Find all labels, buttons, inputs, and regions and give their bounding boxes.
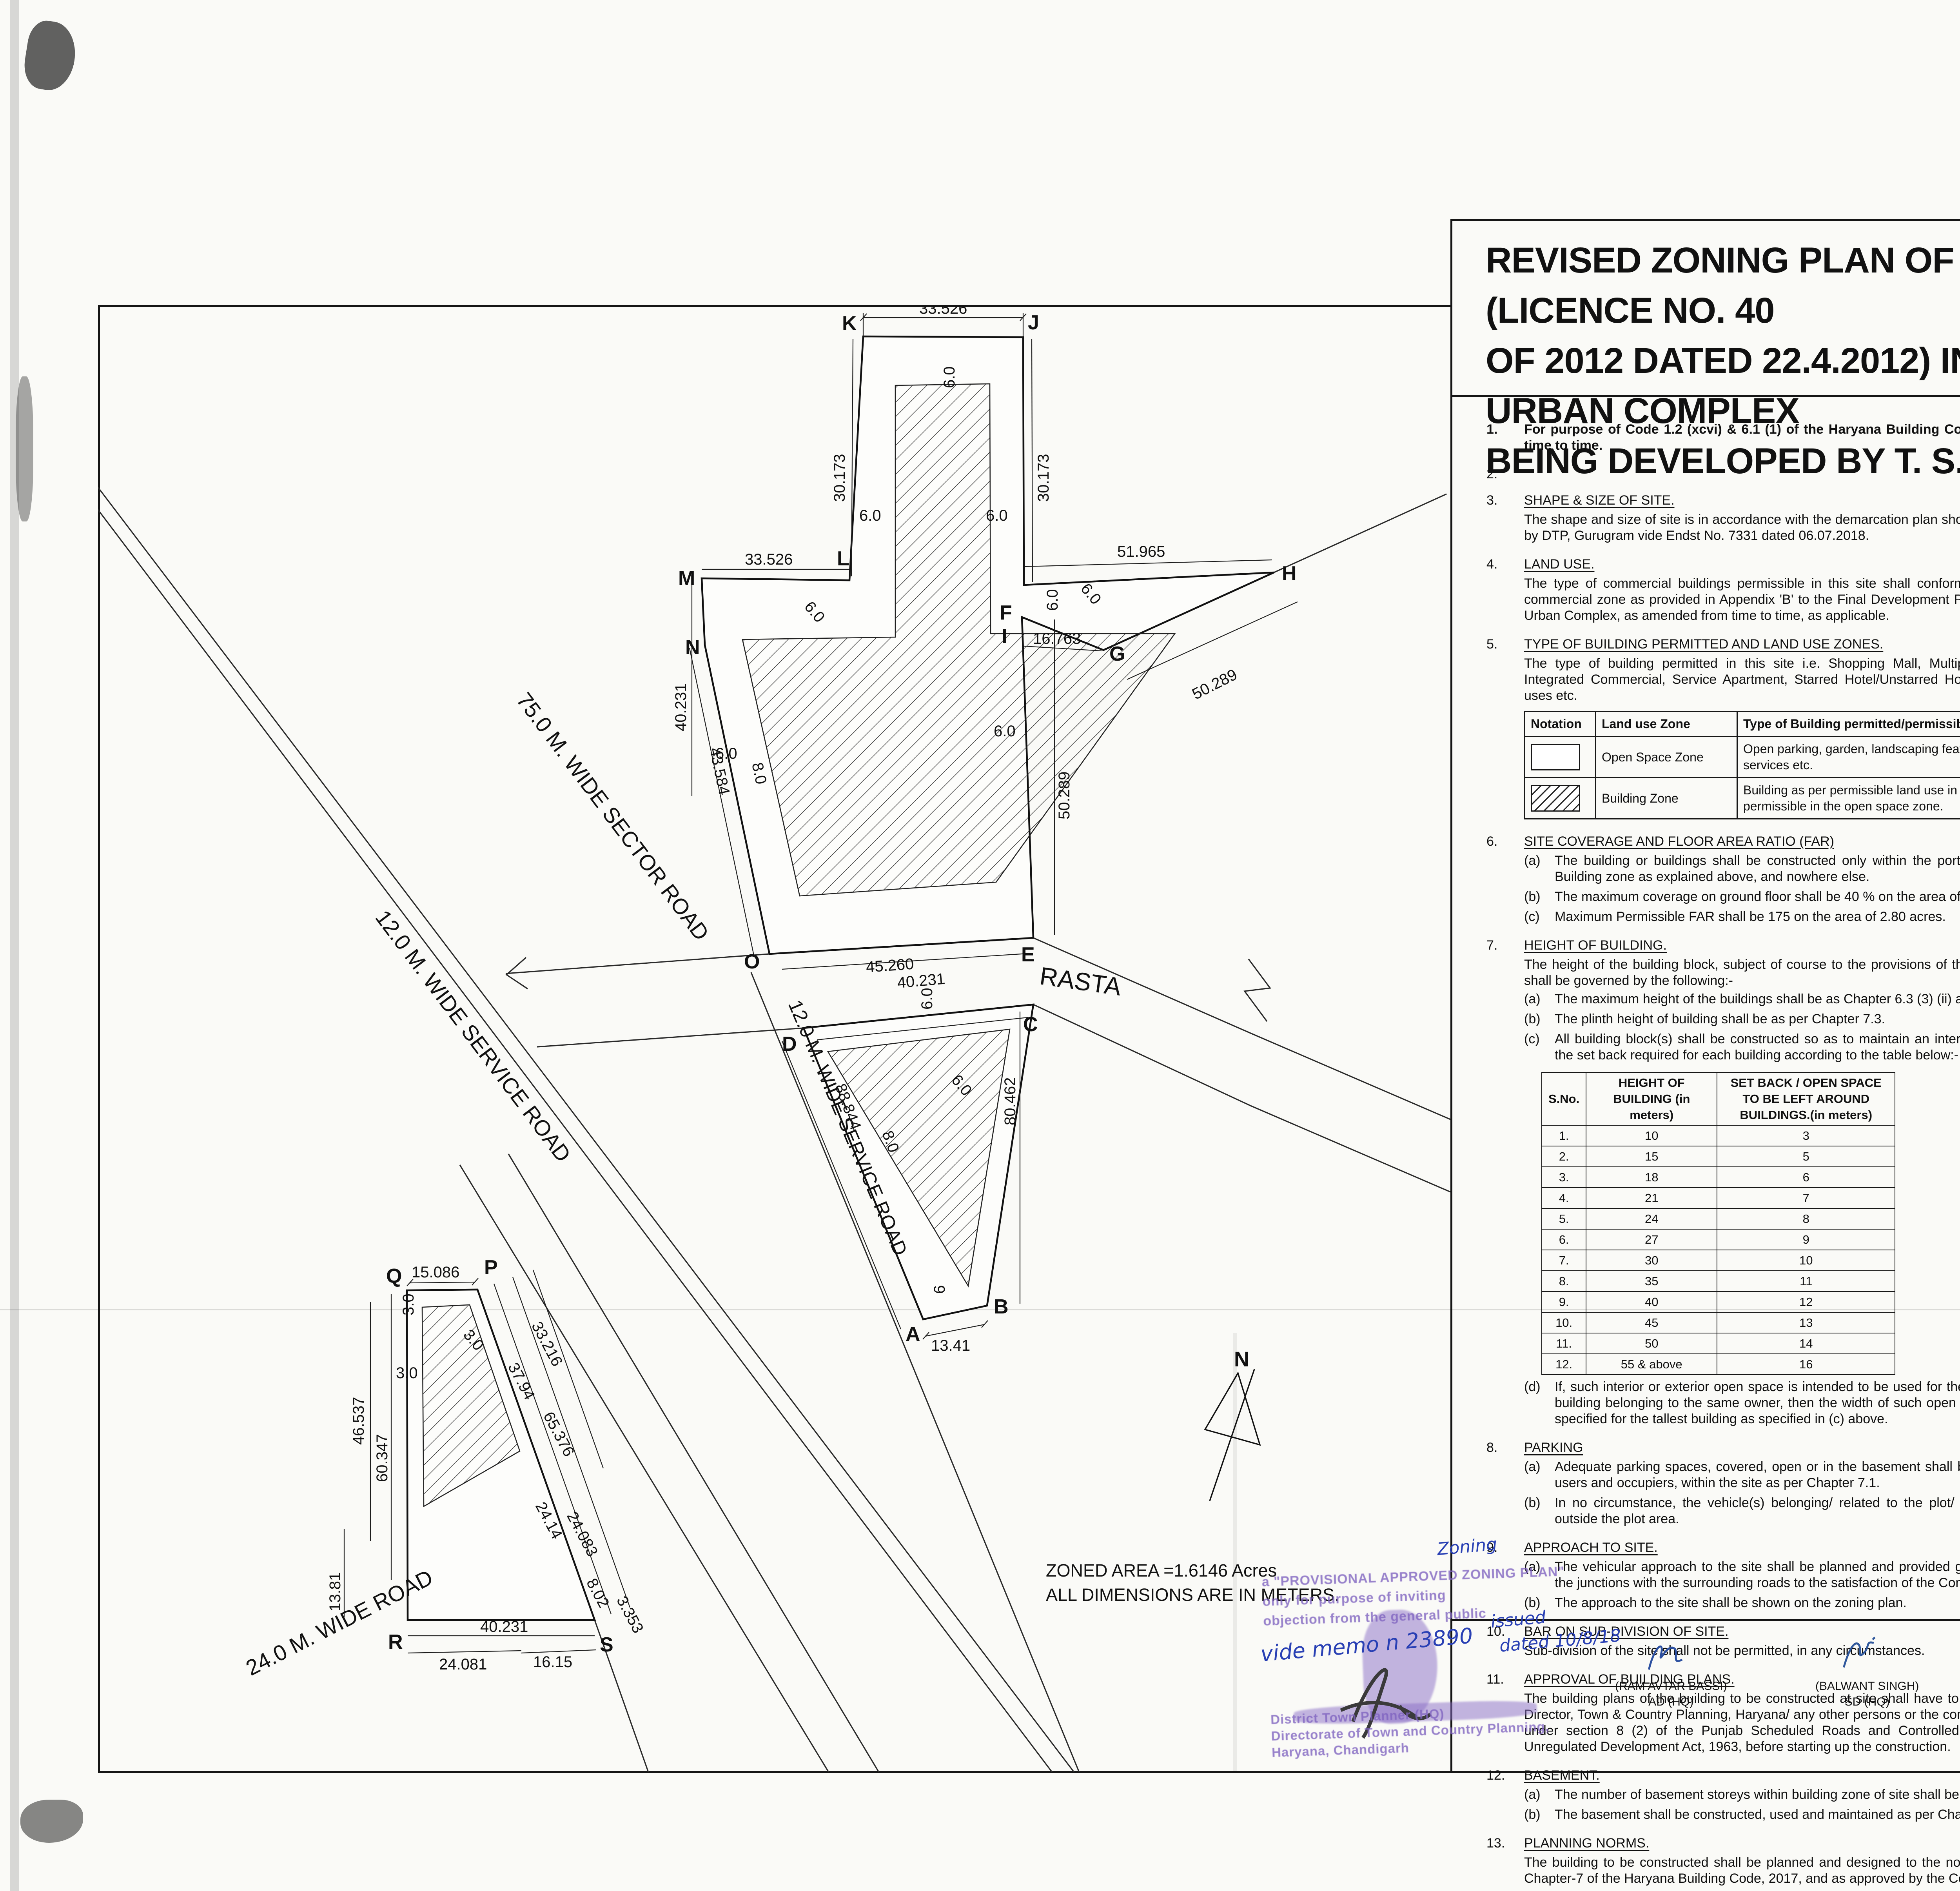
subitem-letter: (d) bbox=[1524, 1379, 1555, 1430]
vertex-O: O bbox=[744, 950, 760, 973]
note-item-7: 7. HEIGHT OF BUILDING. The height of the… bbox=[1486, 937, 1960, 1430]
dim-6-neck-top: 6.0 bbox=[941, 366, 958, 388]
land-use-zone-cell: Open Space Zone bbox=[1596, 737, 1737, 778]
vertex-B: B bbox=[994, 1295, 1009, 1318]
subitem-letter: (a) bbox=[1524, 853, 1555, 887]
dim-6-fg: 6.0 bbox=[1044, 589, 1061, 611]
stamp-handwriting-dated: dated 10/8/18 bbox=[1499, 1626, 1622, 1656]
label-service-road-left: 12.0 M. WIDE SERVICE ROAD bbox=[370, 905, 576, 1166]
vertex-K: K bbox=[842, 312, 857, 335]
dimension-line bbox=[925, 1324, 985, 1336]
signatory-name: (BALWANT SINGH) bbox=[1815, 1678, 1919, 1694]
height-table-header: SET BACK / OPEN SPACE TO BE LEFT AROUND … bbox=[1717, 1072, 1895, 1125]
building-zone-swatch bbox=[1531, 785, 1580, 812]
north-label: N bbox=[1234, 1348, 1249, 1371]
cell-setback: 5 bbox=[1717, 1146, 1895, 1167]
note-number: 13. bbox=[1486, 1835, 1524, 1889]
cell-height: 27 bbox=[1586, 1229, 1717, 1250]
note-subitem: (b)In no circumstance, the vehicle(s) be… bbox=[1524, 1495, 1960, 1530]
cell-height: 55 & above bbox=[1586, 1354, 1717, 1375]
cell-setback: 14 bbox=[1717, 1333, 1895, 1354]
cell-height: 30 bbox=[1586, 1250, 1717, 1271]
table-row: 3.186 bbox=[1542, 1167, 1895, 1188]
vertex-L: L bbox=[837, 547, 849, 570]
note-subitem: (a)The building or buildings shall be co… bbox=[1524, 853, 1960, 887]
sector-road-ne-extension bbox=[1274, 494, 1446, 572]
vertex-N: N bbox=[685, 636, 700, 659]
dim-ih: 51.965 bbox=[1117, 543, 1165, 560]
cell-height: 10 bbox=[1586, 1125, 1717, 1146]
subitem-text: The basement shall be constructed, used … bbox=[1555, 1807, 1960, 1823]
land-use-type-cell: Open parking, garden, landscaping featur… bbox=[1737, 737, 1960, 778]
road24-edge-b bbox=[508, 1154, 879, 1772]
note-item-1: 1. For purpose of Code 1.2 (xcvi) & 6.1 … bbox=[1486, 421, 1960, 456]
dim-3-lower-c: 3.0 bbox=[396, 1364, 418, 1382]
dimension-line bbox=[410, 1282, 475, 1283]
note-text: The building to be constructed shall be … bbox=[1524, 1855, 1960, 1887]
rasta-break-arrow bbox=[1245, 959, 1270, 1021]
dimension-line bbox=[1032, 339, 1033, 582]
cell-sno: 12. bbox=[1542, 1354, 1586, 1375]
north-arrow bbox=[1205, 1369, 1260, 1501]
note-item-2: 2. bbox=[1486, 466, 1960, 482]
cell-setback: 13 bbox=[1717, 1312, 1895, 1333]
dim-hg-diagonal: 50.289 bbox=[1189, 666, 1240, 703]
dim-1615: 16.15 bbox=[533, 1653, 572, 1671]
note-heading: TYPE OF BUILDING PERMITTED AND LAND USE … bbox=[1524, 636, 1960, 652]
zoning-plan-drawing: K J M L I H N F G O E D C B A Q P R S 33… bbox=[98, 306, 1450, 1772]
subitem-letter: (a) bbox=[1524, 1787, 1555, 1805]
note-subitem: (b)The basement shall be constructed, us… bbox=[1524, 1807, 1960, 1825]
subitem-text: The plinth height of building shall be a… bbox=[1555, 1011, 1960, 1027]
note-item-3: 3. SHAPE & SIZE OF SITE. The shape and s… bbox=[1486, 492, 1960, 546]
dim-60347: 60.347 bbox=[374, 1434, 391, 1482]
note-subitem: (c)All building block(s) shall be constr… bbox=[1524, 1031, 1960, 1066]
cell-setback: 6 bbox=[1717, 1167, 1895, 1188]
cell-sno: 7. bbox=[1542, 1250, 1586, 1271]
cell-sno: 11. bbox=[1542, 1333, 1586, 1354]
table-row: 10.4513 bbox=[1542, 1312, 1895, 1333]
note-subitem: (a)The maximum height of the buildings s… bbox=[1524, 991, 1960, 1010]
note-number: 4. bbox=[1486, 556, 1524, 626]
vertex-Q: Q bbox=[386, 1265, 402, 1288]
subitem-letter: (b) bbox=[1524, 889, 1555, 907]
vertex-D: D bbox=[782, 1033, 797, 1055]
note-number: 7. bbox=[1486, 937, 1524, 1430]
cell-height: 18 bbox=[1586, 1167, 1717, 1188]
dim-24081: 24.081 bbox=[439, 1656, 487, 1673]
table-row: 12.55 & above16 bbox=[1542, 1354, 1895, 1375]
cell-setback: 12 bbox=[1717, 1292, 1895, 1312]
title-line2: OF 2012 DATED 22.4.2012) IN SECTOR-85 & … bbox=[1486, 336, 1960, 436]
dim-33216: 33.216 bbox=[528, 1319, 566, 1370]
dim-6-neck-left: 6.0 bbox=[859, 507, 881, 524]
scan-edge-artifact bbox=[10, 0, 19, 1891]
note-number: 6. bbox=[1486, 834, 1524, 927]
dim-neck-left: 30.173 bbox=[831, 454, 848, 502]
subitem-letter: (b) bbox=[1524, 1495, 1555, 1530]
table-row: Building Zone Building as per permissibl… bbox=[1525, 778, 1960, 819]
cell-setback: 7 bbox=[1717, 1188, 1895, 1208]
note-number: 1. bbox=[1486, 421, 1524, 456]
land-use-header-notation: Notation bbox=[1525, 712, 1596, 737]
cell-sno: 1. bbox=[1542, 1125, 1586, 1146]
dim-6-above-c: 6.0 bbox=[918, 988, 936, 1010]
subitem-letter: (c) bbox=[1524, 909, 1555, 927]
land-use-table: Notation Land use Zone Type of Building … bbox=[1524, 711, 1960, 819]
cell-setback: 10 bbox=[1717, 1250, 1895, 1271]
note-number: 5. bbox=[1486, 636, 1524, 823]
subitem-text: Adequate parking spaces, covered, open o… bbox=[1555, 1459, 1960, 1491]
subitem-text: The number of basement storeys within bu… bbox=[1555, 1787, 1960, 1803]
open-space-zone-swatch bbox=[1531, 744, 1580, 770]
signature-block: (BALWANT SINGH) SD (HQ) bbox=[1815, 1633, 1919, 1714]
dim-ab: 13.41 bbox=[931, 1337, 970, 1354]
note-subitem: (a)Adequate parking spaces, covered, ope… bbox=[1524, 1459, 1960, 1493]
dim-6-fe: 6.0 bbox=[994, 723, 1016, 740]
note-heading: PARKING bbox=[1524, 1440, 1960, 1456]
vertex-P: P bbox=[484, 1256, 498, 1279]
signatory-title: SD (HQ) bbox=[1815, 1694, 1919, 1710]
note-item-8: 8. PARKING (a)Adequate parking spaces, c… bbox=[1486, 1440, 1960, 1530]
note-item-6: 6. SITE COVERAGE AND FLOOR AREA RATIO (F… bbox=[1486, 834, 1960, 927]
note-number: 8. bbox=[1486, 1440, 1524, 1530]
note-number: 3. bbox=[1486, 492, 1524, 546]
land-use-zone-cell: Building Zone bbox=[1596, 778, 1737, 819]
note-heading: BASEMENT. bbox=[1524, 1767, 1960, 1784]
dim-fe-vertical: 50.289 bbox=[1056, 772, 1073, 819]
signature-scribble bbox=[1834, 1633, 1900, 1676]
dim-3353: 3.353 bbox=[613, 1593, 647, 1636]
note-subitem: (b)The plinth height of building shall b… bbox=[1524, 1011, 1960, 1030]
cell-height: 21 bbox=[1586, 1188, 1717, 1208]
cell-sno: 4. bbox=[1542, 1188, 1586, 1208]
cell-height: 24 bbox=[1586, 1208, 1717, 1229]
dim-6-neck-right: 6.0 bbox=[986, 507, 1008, 524]
dim-rs: 40.231 bbox=[480, 1618, 528, 1635]
vertex-F: F bbox=[1000, 601, 1012, 624]
note-subitem: (c)Maximum Permissible FAR shall be 175 … bbox=[1524, 909, 1960, 927]
note-item-4: 4. LAND USE. The type of commercial buil… bbox=[1486, 556, 1960, 626]
cell-sno: 9. bbox=[1542, 1292, 1586, 1312]
note-heading: PLANNING NORMS. bbox=[1524, 1835, 1960, 1851]
note-subitem: (d)If, such interior or exterior open sp… bbox=[1524, 1379, 1960, 1430]
stamp-line2: only for purpose of inviting bbox=[1262, 1588, 1446, 1609]
scan-blot-left bbox=[16, 376, 33, 521]
note-text: The shape and size of site is in accorda… bbox=[1524, 512, 1960, 544]
vertex-H: H bbox=[1282, 562, 1297, 585]
cell-height: 15 bbox=[1586, 1146, 1717, 1167]
cell-sno: 10. bbox=[1542, 1312, 1586, 1333]
land-use-type-cell: Building as per permissible land use in … bbox=[1737, 778, 1960, 819]
note-heading: SITE COVERAGE AND FLOOR AREA RATIO (FAR) bbox=[1524, 834, 1960, 850]
vertex-R: R bbox=[388, 1631, 403, 1653]
dim-3-lower-a: 3.0 bbox=[400, 1293, 417, 1315]
cell-sno: 2. bbox=[1542, 1146, 1586, 1167]
dimension-tick bbox=[982, 1321, 988, 1328]
stamp-handwriting-top: Zoning bbox=[1436, 1534, 1498, 1559]
height-setback-table: S.No. HEIGHT OF BUILDING (in meters) SET… bbox=[1541, 1072, 1895, 1375]
dim-kj: 33.526 bbox=[919, 306, 967, 317]
table-row: 9.4012 bbox=[1542, 1292, 1895, 1312]
building-zone-hatch-main bbox=[742, 384, 1175, 896]
dim-neck-right: 30.173 bbox=[1035, 454, 1052, 502]
dim-qp: 15.086 bbox=[412, 1264, 459, 1281]
cell-height: 35 bbox=[1586, 1271, 1717, 1292]
table-row: Open Space Zone Open parking, garden, la… bbox=[1525, 737, 1960, 778]
subitem-text: In no circumstance, the vehicle(s) belon… bbox=[1555, 1495, 1960, 1527]
note-text: The height of the building block, subjec… bbox=[1524, 957, 1960, 989]
cell-sno: 8. bbox=[1542, 1271, 1586, 1292]
approval-stamp: Zoning a "PROVISIONAL APPROVED ZONING PL… bbox=[1253, 1530, 1676, 1764]
cell-height: 50 bbox=[1586, 1333, 1717, 1354]
table-row: 8.3511 bbox=[1542, 1271, 1895, 1292]
dim-m-vertical: 40.231 bbox=[672, 683, 690, 731]
note-text: The type of commercial buildings permiss… bbox=[1524, 576, 1960, 624]
subitem-text: The maximum height of the buildings shal… bbox=[1555, 991, 1960, 1007]
vertex-E: E bbox=[1021, 943, 1035, 966]
cell-height: 40 bbox=[1586, 1292, 1717, 1312]
cell-setback: 16 bbox=[1717, 1354, 1895, 1375]
subitem-text: If, such interior or exterior open space… bbox=[1555, 1379, 1960, 1427]
note-text: The type of building permitted in this s… bbox=[1524, 656, 1960, 704]
note-heading: HEIGHT OF BUILDING. bbox=[1524, 937, 1960, 954]
table-row: 7.3010 bbox=[1542, 1250, 1895, 1271]
note-number: 12. bbox=[1486, 1767, 1524, 1825]
dim-6-triangle-bottom: 6 bbox=[931, 1285, 948, 1294]
note-subitem: (a)The number of basement storeys within… bbox=[1524, 1787, 1960, 1805]
table-row: 5.248 bbox=[1542, 1208, 1895, 1229]
note-subitem: (b)The maximum coverage on ground floor … bbox=[1524, 889, 1960, 907]
note-number: 2. bbox=[1486, 466, 1524, 482]
dim-6-left-edge: 6.0 bbox=[715, 745, 737, 762]
land-use-header-type: Type of Building permitted/permissible s… bbox=[1737, 712, 1960, 737]
cell-setback: 8 bbox=[1717, 1208, 1895, 1229]
dim-oe: 45.260 bbox=[866, 955, 915, 976]
cell-height: 45 bbox=[1586, 1312, 1717, 1333]
dim-fg: 16.763 bbox=[1033, 630, 1081, 647]
dimension-line bbox=[521, 1650, 596, 1653]
table-row: 11.5014 bbox=[1542, 1333, 1895, 1354]
cell-sno: 3. bbox=[1542, 1167, 1586, 1188]
scan-blot-topleft bbox=[21, 18, 80, 93]
scan-blot-bottomleft bbox=[20, 1800, 83, 1843]
vertex-I: I bbox=[1002, 625, 1007, 648]
vertex-M: M bbox=[678, 567, 695, 590]
table-row: 4.217 bbox=[1542, 1188, 1895, 1208]
vertex-S: S bbox=[600, 1633, 613, 1656]
subitem-text: Maximum Permissible FAR shall be 175 on … bbox=[1555, 909, 1960, 925]
border-top-text bbox=[1450, 219, 1960, 221]
height-table-header: S.No. bbox=[1542, 1072, 1586, 1125]
dimension-line bbox=[408, 1651, 521, 1653]
note-item-12: 12. BASEMENT. (a)The number of basement … bbox=[1486, 1767, 1960, 1825]
note-heading: SHAPE & SIZE OF SITE. bbox=[1524, 492, 1960, 509]
cell-setback: 11 bbox=[1717, 1271, 1895, 1292]
subitem-letter: (b) bbox=[1524, 1011, 1555, 1030]
subitem-text: The maximum coverage on ground floor sha… bbox=[1555, 889, 1960, 905]
note-item-5: 5. TYPE OF BUILDING PERMITTED AND LAND U… bbox=[1486, 636, 1960, 823]
height-table-header: HEIGHT OF BUILDING (in meters) bbox=[1586, 1072, 1717, 1125]
label-rasta: RASTA bbox=[1038, 962, 1123, 1001]
stamp-handwriting-issued: issued bbox=[1490, 1607, 1547, 1632]
cell-setback: 9 bbox=[1717, 1229, 1895, 1250]
dimension-line bbox=[1025, 560, 1272, 567]
vertex-G: G bbox=[1109, 643, 1125, 665]
subitem-letter: (c) bbox=[1524, 1031, 1555, 1066]
vertex-J: J bbox=[1028, 311, 1039, 334]
land-use-header-zone: Land use Zone bbox=[1596, 712, 1737, 737]
dim-ml: 33.526 bbox=[745, 551, 793, 568]
subitem-text: All building block(s) shall be construct… bbox=[1555, 1031, 1960, 1063]
dim-46537: 46.537 bbox=[350, 1397, 367, 1445]
note-item-13-left: 13. PLANNING NORMS. The building to be c… bbox=[1486, 1835, 1960, 1889]
cell-sno: 5. bbox=[1542, 1208, 1586, 1229]
subitem-letter: (a) bbox=[1524, 1459, 1555, 1493]
dim-1381: 13.81 bbox=[327, 1572, 344, 1611]
title-line1: REVISED ZONING PLAN OF COMMERCIAL SITE M… bbox=[1486, 235, 1960, 336]
cell-setback: 3 bbox=[1717, 1125, 1895, 1146]
scanned-sheet: K J M L I H N F G O E D C B A Q P R S 33… bbox=[0, 0, 1960, 1891]
table-row: 2.155 bbox=[1542, 1146, 1895, 1167]
dim-cb: 80.462 bbox=[1002, 1077, 1019, 1125]
dim-65376: 65.376 bbox=[540, 1409, 577, 1460]
cell-sno: 6. bbox=[1542, 1229, 1586, 1250]
note-text: For purpose of Code 1.2 (xcvi) & 6.1 (1)… bbox=[1524, 421, 1960, 454]
table-row: 1.103 bbox=[1542, 1125, 1895, 1146]
table-row: 6.279 bbox=[1542, 1229, 1895, 1250]
note-heading: LAND USE. bbox=[1524, 556, 1960, 572]
vertex-C: C bbox=[1023, 1013, 1038, 1036]
vertex-A: A bbox=[906, 1323, 920, 1346]
subitem-text: The building or buildings shall be const… bbox=[1555, 853, 1960, 885]
stamp-line1: a "PROVISIONAL APPROVED ZONING PLAN" bbox=[1261, 1564, 1565, 1590]
subitem-letter: (b) bbox=[1524, 1807, 1555, 1825]
stamp-footer3: Haryana, Chandigarh bbox=[1271, 1740, 1409, 1760]
subitem-letter: (a) bbox=[1524, 991, 1555, 1010]
